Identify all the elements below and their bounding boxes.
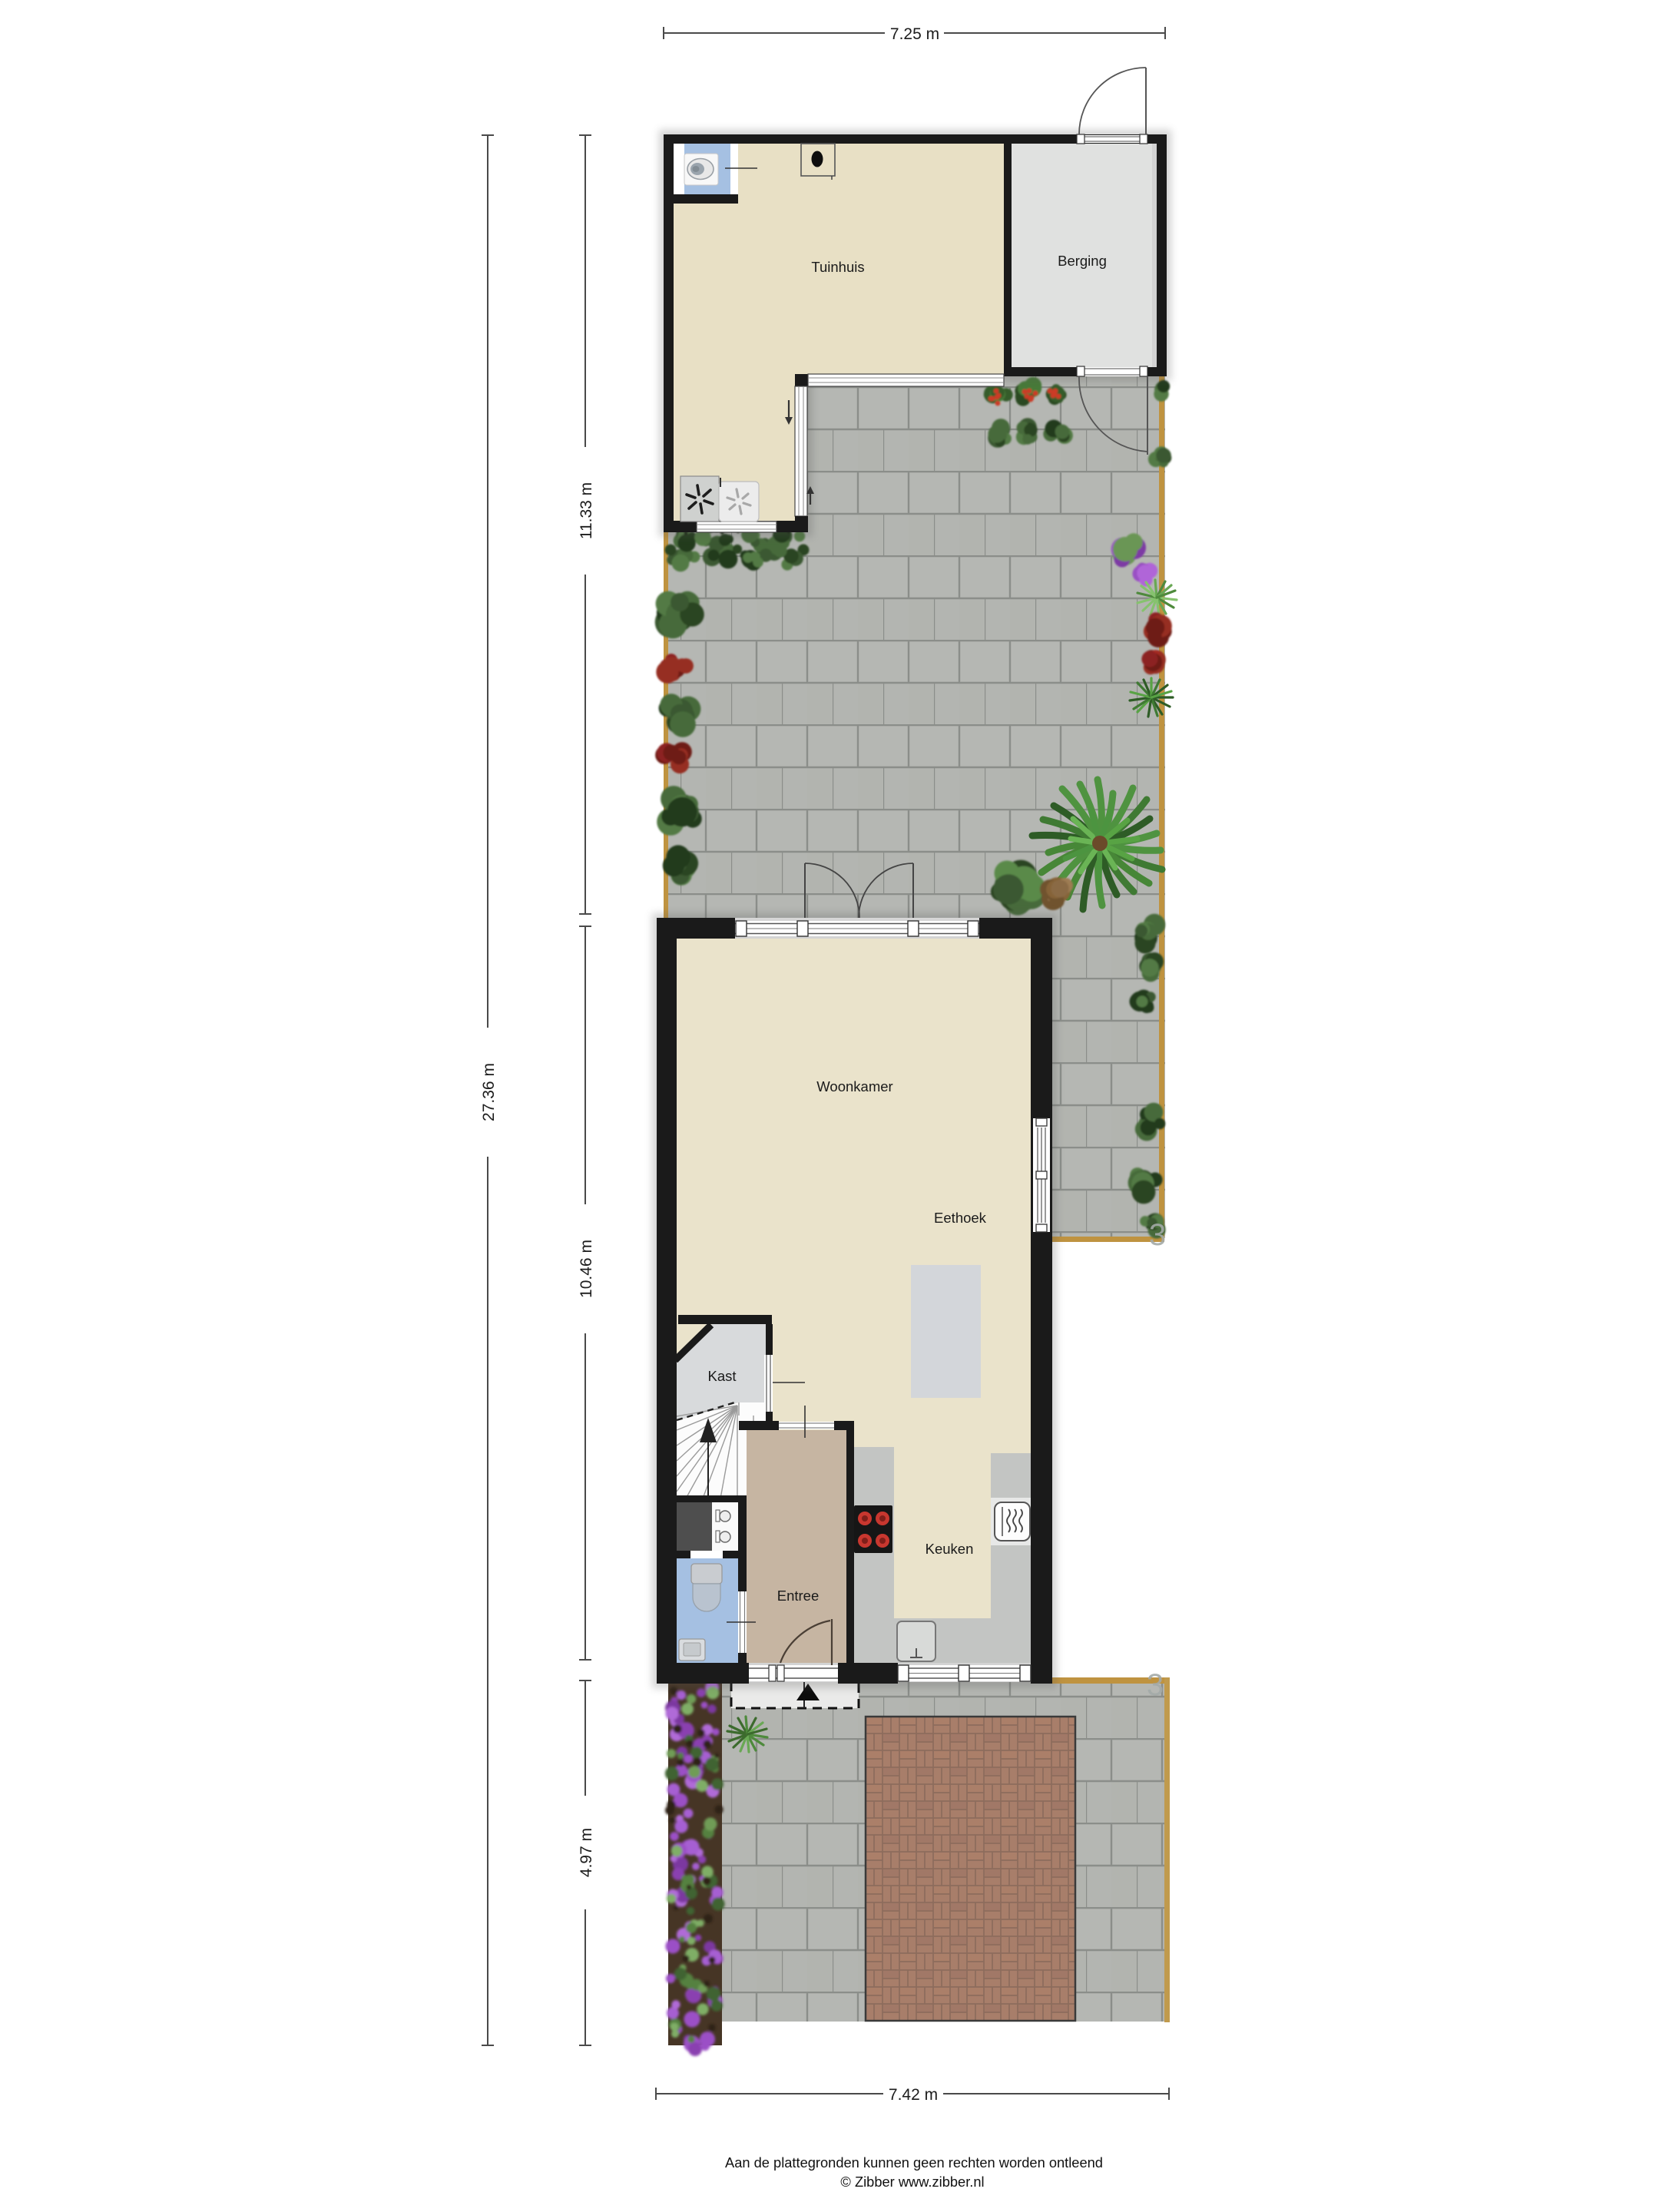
- svg-text:27.36 m: 27.36 m: [480, 1063, 498, 1121]
- svg-text:11.33 m: 11.33 m: [578, 482, 595, 539]
- svg-text:Tuinhuis: Tuinhuis: [811, 259, 864, 275]
- svg-text:Entree: Entree: [777, 1588, 820, 1604]
- svg-text:3: 3: [1149, 1218, 1166, 1252]
- svg-text:4.97 m: 4.97 m: [578, 1828, 595, 1877]
- svg-text:Eethoek: Eethoek: [934, 1210, 987, 1226]
- svg-text:Berging: Berging: [1058, 253, 1107, 269]
- svg-text:Kast: Kast: [707, 1368, 736, 1384]
- svg-text:3: 3: [1147, 1668, 1164, 1702]
- svg-text:Aan de plattegronden kunnen ge: Aan de plattegronden kunnen geen rechten…: [725, 2154, 1103, 2171]
- svg-text:7.42 m: 7.42 m: [889, 2086, 938, 2104]
- svg-text:10.46 m: 10.46 m: [578, 1240, 595, 1298]
- svg-text:Keuken: Keuken: [926, 1541, 974, 1557]
- svg-text:© Zibber www.zibber.nl: © Zibber www.zibber.nl: [840, 2174, 984, 2190]
- svg-text:7.25 m: 7.25 m: [890, 25, 939, 43]
- svg-text:Woonkamer: Woonkamer: [816, 1078, 892, 1094]
